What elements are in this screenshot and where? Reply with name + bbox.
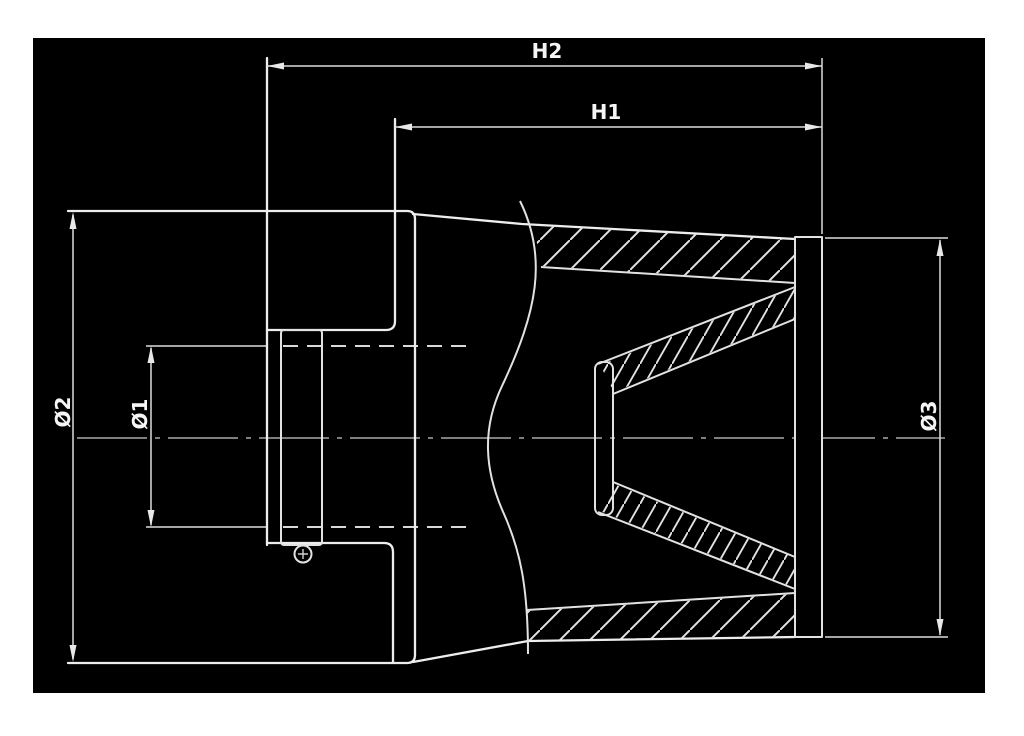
h2-label: H2 (532, 39, 563, 63)
dia3-label: Ø3 (917, 401, 941, 432)
screenshot-page: H2 H1 Ø2 Ø1 Ø3 (0, 0, 1024, 736)
cone-air-filter-technical-drawing: H2 H1 Ø2 Ø1 Ø3 (0, 0, 1024, 736)
h1-label: H1 (591, 100, 622, 124)
end-cap-section (795, 237, 822, 637)
drawing-sheet (33, 38, 985, 693)
dia1-label: Ø1 (128, 399, 152, 430)
dia2-label: Ø2 (51, 397, 75, 428)
